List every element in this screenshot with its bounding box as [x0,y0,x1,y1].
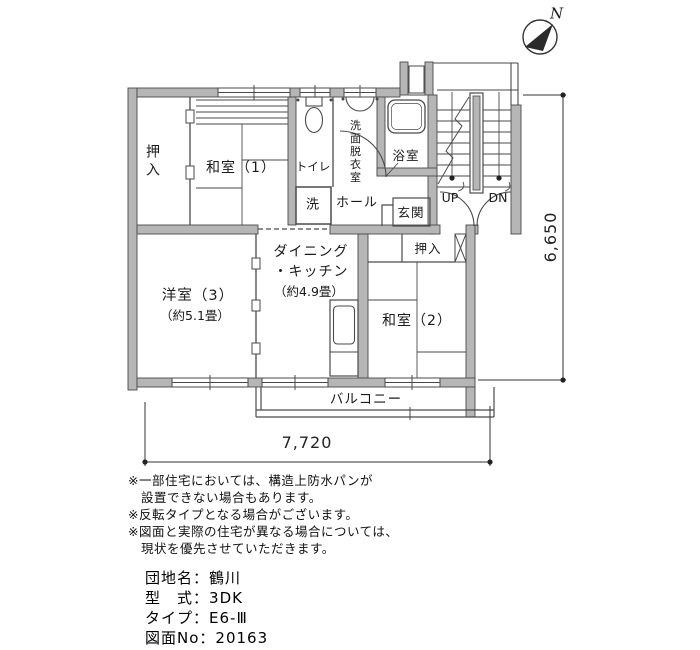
info-separator: ： [193,568,209,588]
info-value: 20163 [215,628,268,648]
kitchen-sink-icon [330,300,358,376]
doors [340,131,511,226]
pipe-duct-box [409,66,424,93]
note-line: ※一部住宅においては、構造上防水パンが [128,472,398,489]
balcony-label: バルコニー [330,393,402,407]
info-row-type: タイプ：E6-Ⅲ [145,608,268,628]
room-label-dk-line2: ・キッチン [274,265,349,279]
room-label-yoshitsu-3-area: （約5.1畳） [160,310,230,323]
notes-block: ※一部住宅においては、構造上防水パンが 設置できない場合もあります。 ※反転タイ… [128,472,398,557]
washbasin-icon [342,97,379,111]
bathtub-icon [388,100,425,133]
info-row-zumen-no: 図面No：20163 [145,628,268,648]
info-block: 団地名：鶴川 型 式：3DK タイプ：E6-Ⅲ 図面No：20163 [145,568,268,648]
room-label-senmen-datsuiishitsu: 洗面脱衣室 [350,120,361,185]
room-label-yoshitsu-3: 洋室（3） [162,289,234,304]
dimension-width-label: 7,720 [282,435,333,451]
room-label-laundry: 洗 [306,199,320,212]
info-label: 型 式 [145,588,193,608]
dimension-height-label: 6,650 [543,212,559,263]
toilet-icon [297,97,333,133]
room-label-washitsu-2: 和室（2） [382,314,452,328]
partition-lines [186,97,466,378]
info-separator: ： [193,608,209,628]
compass-north-label: N [550,7,564,22]
info-label: タイプ [145,608,193,628]
info-label: 団地名 [145,568,193,588]
note-line: ※反転タイプとなる場合がございます。 [128,506,398,523]
info-separator: ： [199,628,215,648]
note-line: ※図面と実際の住宅が異なる場合については、 [128,523,398,540]
stairs-down-label: DN [489,192,508,205]
room-label-dk-line1: ダイニング [274,245,349,259]
note-line: 現状を優先させていただきます。 [128,540,398,557]
info-separator: ： [193,588,209,608]
window-bottom-washitsu2 [385,375,440,390]
window-bottom-dk [262,375,328,390]
floor-plan-page: 押入 和室（1） トイレ 洗 洗面脱衣室 浴室 ホール 玄関 UP DN 洋室（… [0,0,700,650]
info-row-danchi: 団地名：鶴川 [145,568,268,588]
info-label: 図面No [145,628,199,648]
washitsu1-closet-lines [196,100,288,124]
room-label-toilet: トイレ [296,161,331,173]
window-top-washitsu1 [218,85,290,100]
room-label-oshiire-1: 押入 [145,144,159,180]
room-label-hall: ホール [336,197,378,210]
room-label-dk-area: （約4.9畳） [274,286,344,299]
pipe-space-hatch [455,234,466,262]
stairs-up-label: UP [442,192,459,205]
info-row-katashiki: 型 式：3DK [145,588,268,608]
window-bottom-yoshitsu3 [172,375,248,390]
room-label-bath: 浴室 [392,150,419,163]
info-value: 鶴川 [209,568,241,588]
room-label-washitsu-1: 和室（1） [206,161,276,175]
room-label-genkan: 玄関 [397,207,424,220]
note-line: 設置できない場合もあります。 [128,489,398,506]
info-value: E6-Ⅲ [209,608,248,628]
room-label-oshiire-2: 押入 [414,243,441,256]
info-value: 3DK [209,588,243,608]
compass-icon [523,20,557,54]
